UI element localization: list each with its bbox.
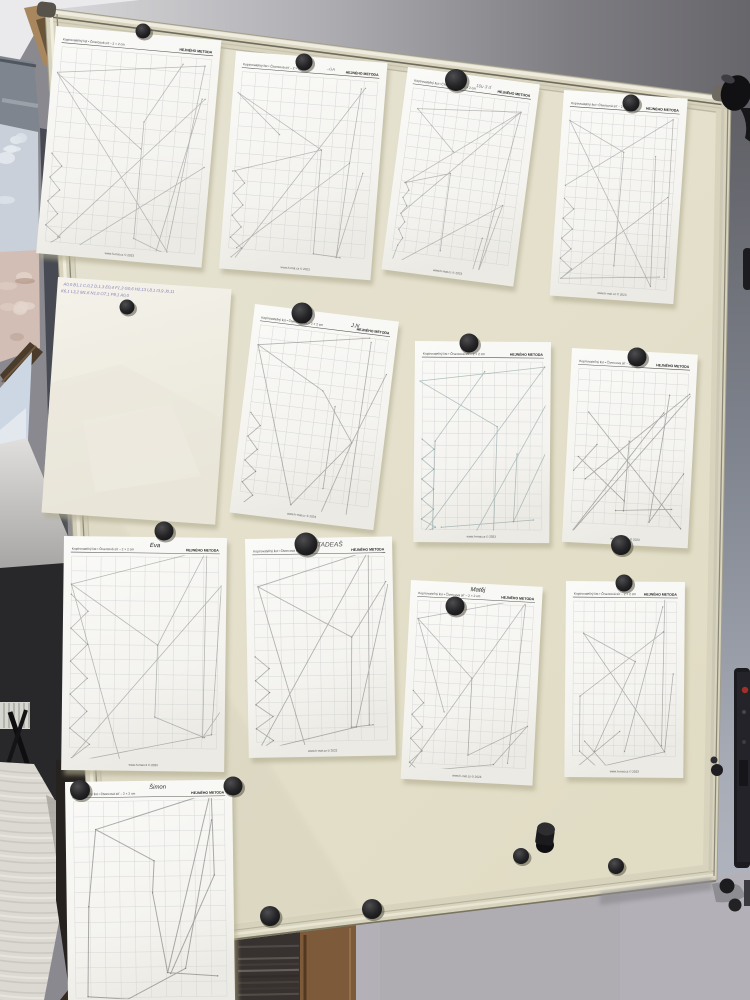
svg-text:Šimon: Šimon	[149, 784, 167, 791]
svg-text:www.h-mat.cz © 2023: www.h-mat.cz © 2023	[308, 748, 338, 753]
svg-text:HEJNÉHO METODA: HEJNÉHO METODA	[351, 546, 385, 552]
svg-text:www.h-mat.cz © 2023: www.h-mat.cz © 2023	[610, 769, 640, 773]
svg-text:–GA: –GA	[326, 66, 336, 72]
svg-text:TADEAŠ: TADEAŠ	[317, 539, 343, 548]
svg-text:Matěj: Matěj	[470, 587, 486, 594]
svg-text:www.h-mat.cz © 2023: www.h-mat.cz © 2023	[129, 763, 159, 767]
svg-text:HEJNÉHO METODA: HEJNÉHO METODA	[644, 591, 678, 596]
svg-text:HEJNÉHO METODA: HEJNÉHO METODA	[191, 790, 225, 795]
svg-text:Eva: Eva	[150, 543, 161, 549]
svg-text:HEJNÉHO METODA: HEJNÉHO METODA	[510, 352, 544, 357]
svg-text:HEJNÉHO METODA: HEJNÉHO METODA	[186, 547, 220, 552]
svg-text:www.h-mat.cz © 2023: www.h-mat.cz © 2023	[467, 534, 497, 538]
svg-text:Kopírovateľný list • Čtvercová: Kopírovateľný list • Čtvercová síť – 2 ×…	[72, 546, 135, 552]
svg-text:J.N: J.N	[350, 323, 360, 330]
